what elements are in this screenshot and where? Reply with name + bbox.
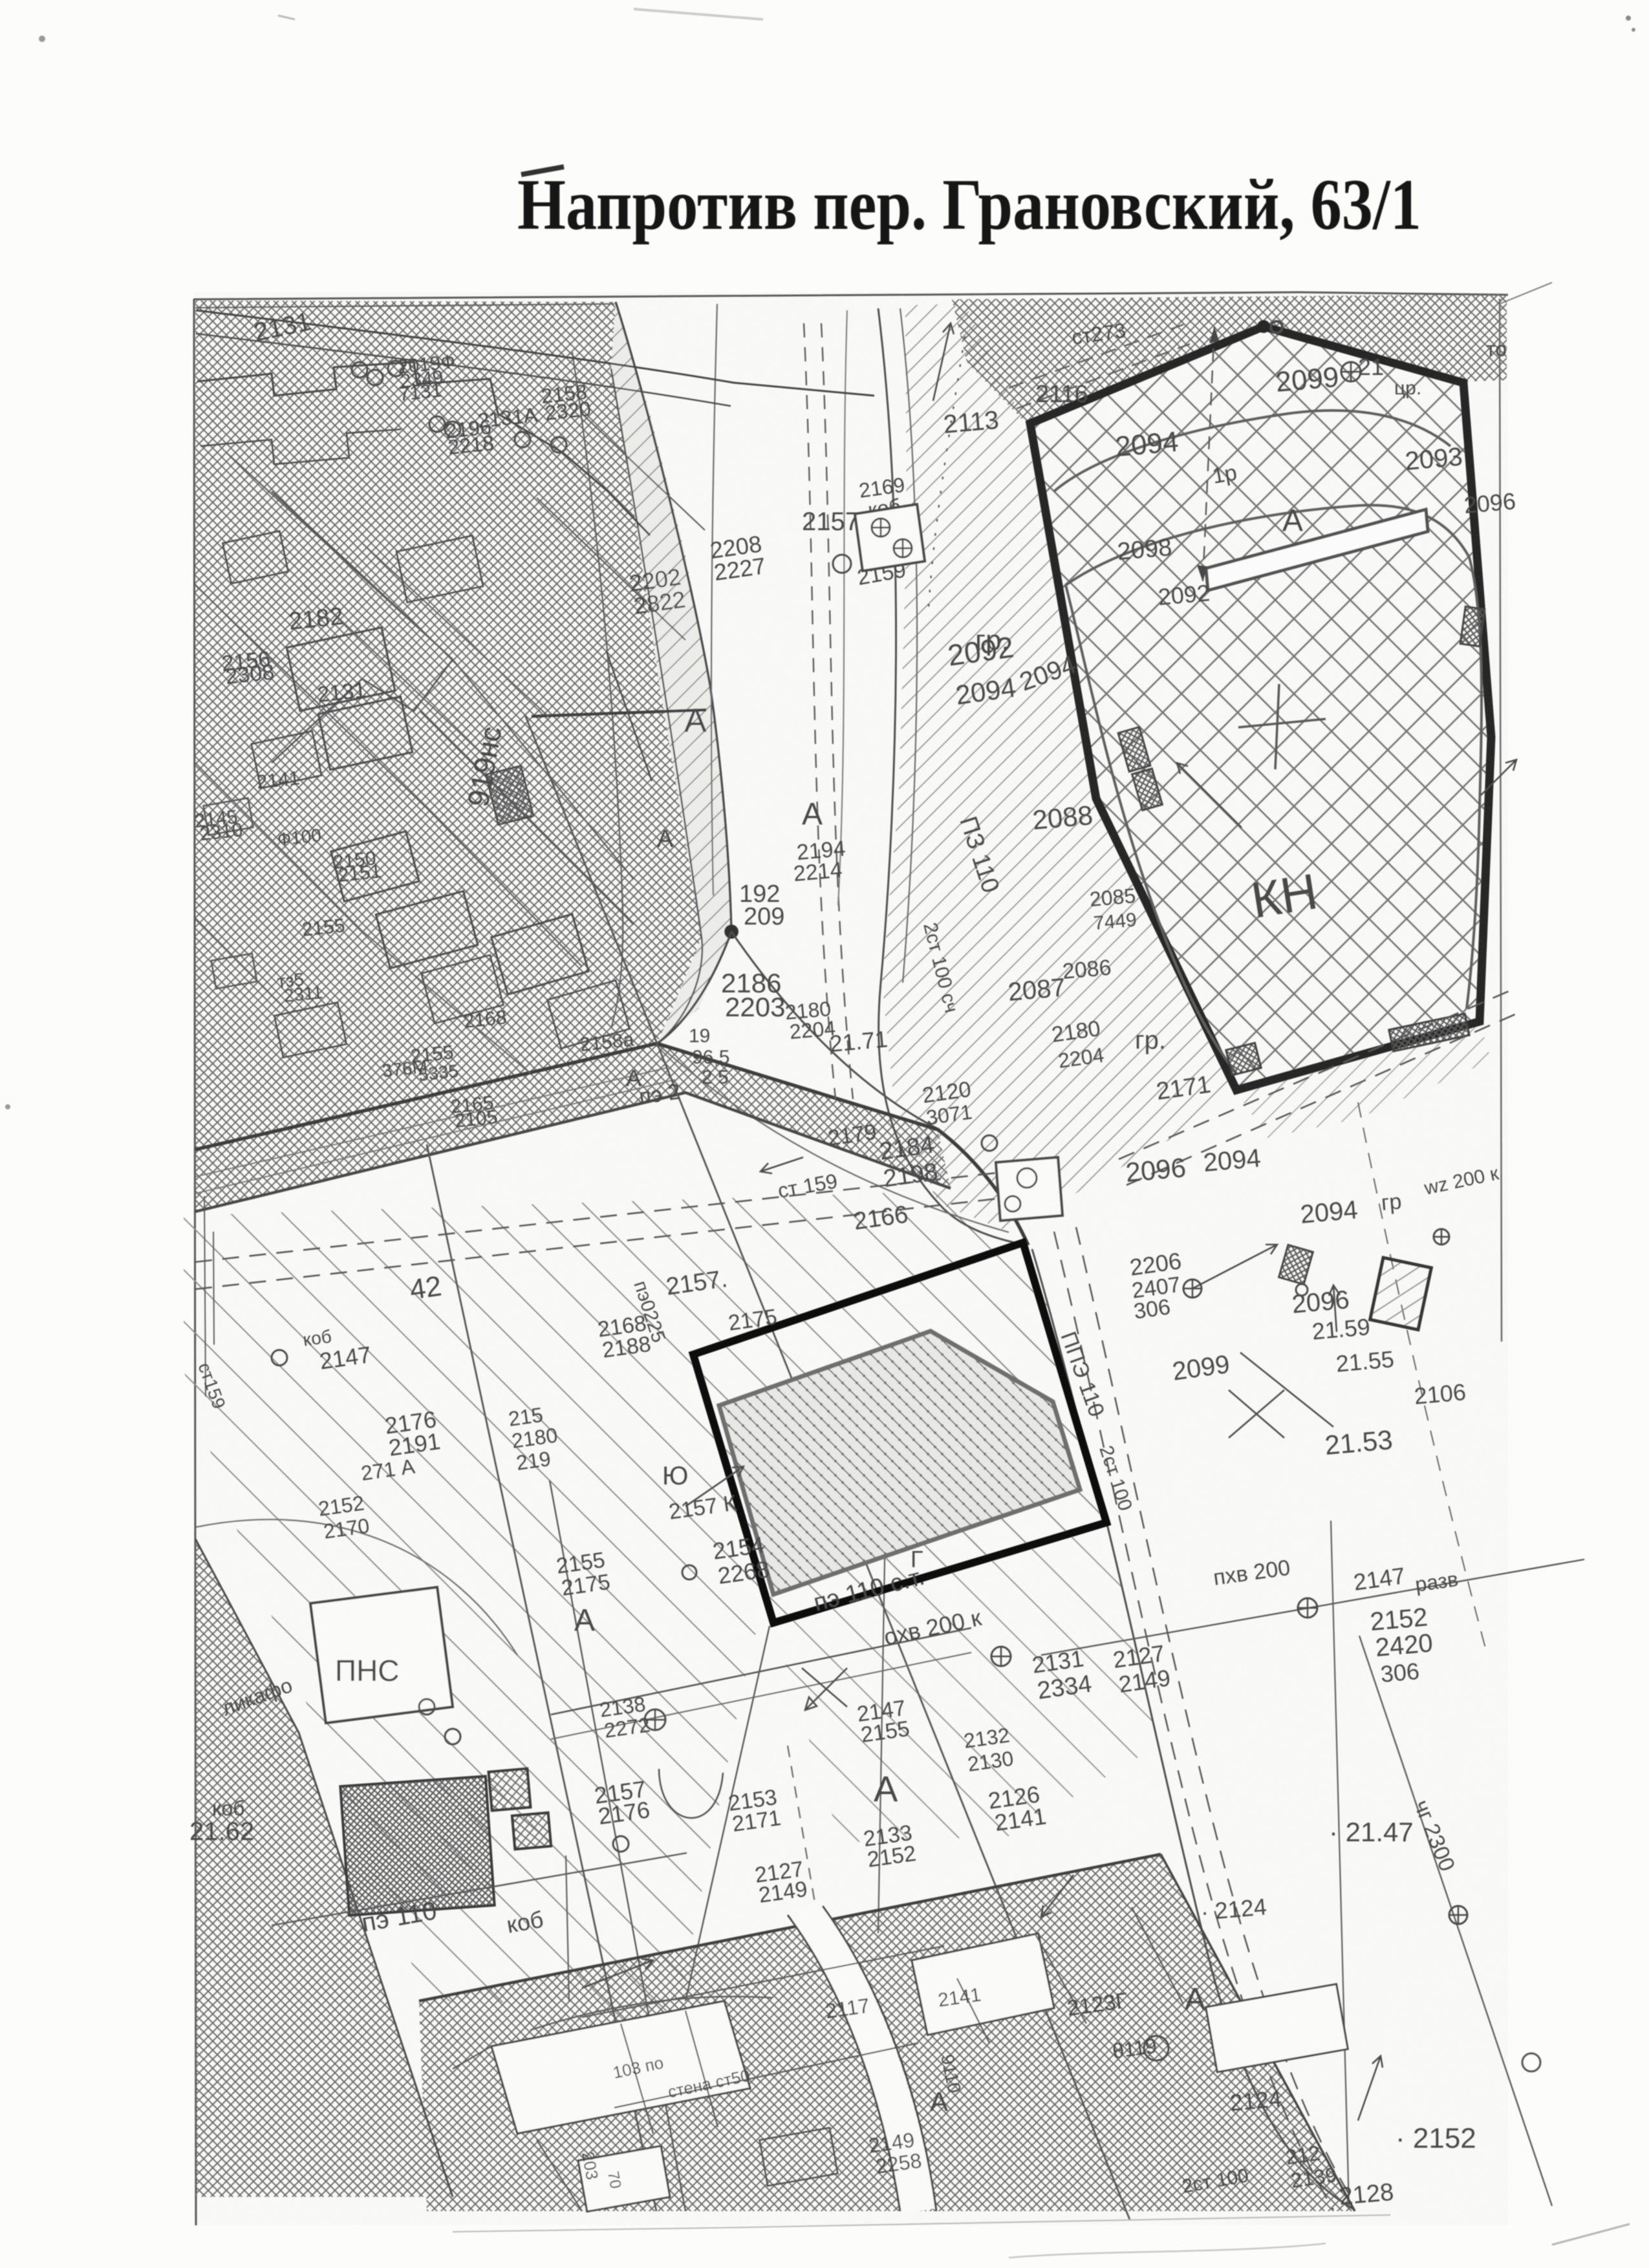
svg-text:Напротив пер. Грановский, 63/1: Напротив пер. Грановский, 63/1 — [517, 165, 1421, 245]
